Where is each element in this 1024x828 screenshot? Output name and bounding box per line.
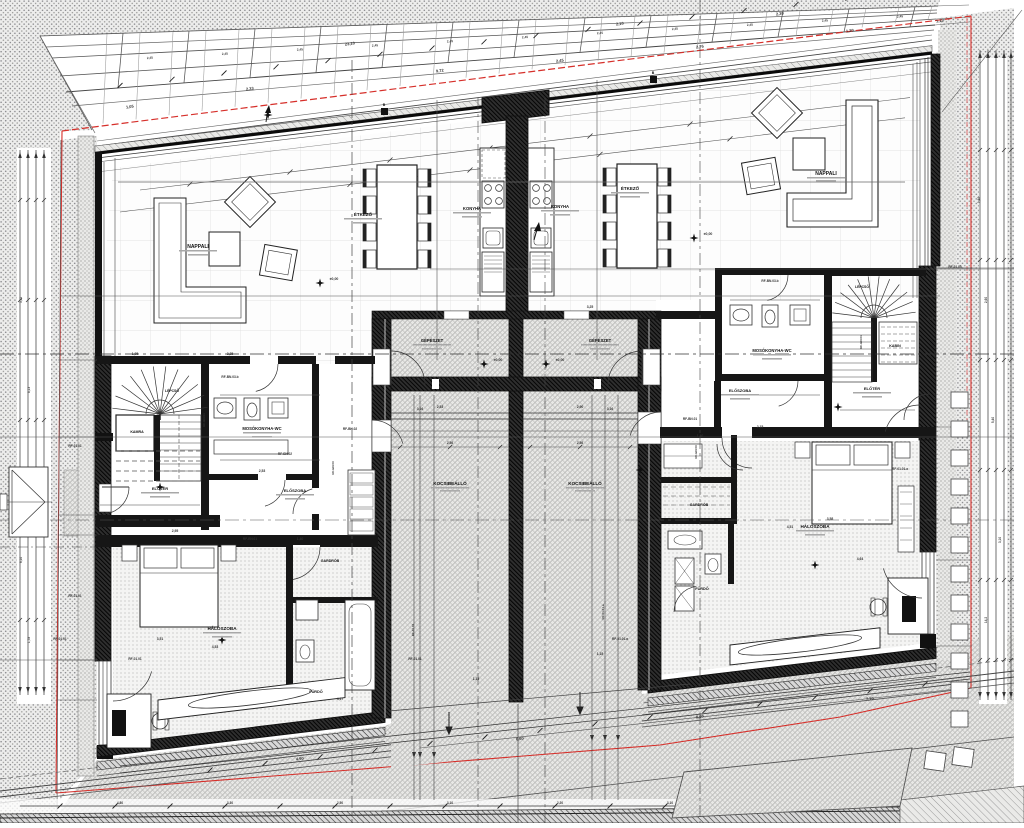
svg-text:3,25: 3,25: [587, 305, 594, 309]
svg-text:2,45: 2,45: [297, 47, 304, 51]
svg-text:1,15: 1,15: [473, 677, 480, 681]
svg-text:7,10: 7,10: [866, 695, 875, 701]
svg-text:3,51: 3,51: [157, 637, 164, 641]
svg-text:3,10: 3,10: [447, 801, 453, 805]
svg-text:4,15: 4,15: [927, 317, 934, 321]
svg-text:2,50: 2,50: [337, 801, 343, 805]
svg-text:6,13: 6,13: [27, 387, 31, 393]
svg-text:2,45: 2,45: [372, 43, 379, 47]
svg-text:2,53: 2,53: [259, 469, 266, 473]
svg-text:2,56: 2,56: [577, 441, 583, 445]
svg-text:RF-BN.02: RF-BN.02: [343, 427, 358, 431]
svg-text:RF-BN.01: RF-BN.01: [202, 413, 206, 427]
svg-text:GARDRÓB: GARDRÓB: [321, 558, 340, 563]
svg-text:ELŐTÉR: ELŐTÉR: [864, 386, 880, 391]
svg-text:HÁLÓSZOBA: HÁLÓSZOBA: [207, 624, 237, 631]
svg-text:2,90: 2,90: [577, 405, 584, 409]
svg-text:4,17: 4,17: [337, 697, 344, 701]
svg-text:ÉTKEZŐ: ÉTKEZŐ: [621, 184, 640, 191]
svg-text:KABIN: KABIN: [889, 344, 901, 348]
svg-text:RF-01.01: RF-01.01: [68, 444, 82, 448]
svg-text:RF-01.05: RF-01.05: [948, 265, 962, 269]
svg-text:2,30: 2,30: [776, 10, 785, 16]
svg-text:HÁLÓSZOBA: HÁLÓSZOBA: [800, 522, 830, 529]
svg-text:1,46: 1,46: [977, 197, 981, 203]
svg-text:3,10: 3,10: [998, 537, 1002, 543]
svg-text:1,95: 1,95: [132, 352, 139, 356]
svg-text:4,80: 4,80: [117, 801, 123, 805]
svg-text:2,45: 2,45: [447, 39, 454, 43]
svg-text:5,40: 5,40: [991, 417, 995, 423]
svg-text:2,45: 2,45: [597, 31, 604, 35]
svg-text:3,30: 3,30: [227, 801, 233, 805]
svg-text:RF-01.01.a: RF-01.01.a: [601, 604, 605, 619]
svg-text:3,16: 3,16: [607, 407, 613, 411]
svg-text:ELŐSZOBA: ELŐSZOBA: [729, 388, 751, 393]
svg-text:KONYHA: KONYHA: [551, 204, 569, 209]
svg-text:RF-BN.01: RF-BN.01: [683, 417, 698, 421]
svg-text:KOCSIBEÁLLÓ: KOCSIBEÁLLÓ: [433, 479, 467, 486]
svg-text:RF-BN.03.b: RF-BN.03.b: [761, 279, 778, 283]
svg-text:LÉPCSŐ: LÉPCSŐ: [855, 284, 869, 289]
svg-text:1,20: 1,20: [846, 27, 855, 33]
svg-text:1,15: 1,15: [597, 652, 604, 656]
svg-text:KAMRA: KAMRA: [130, 430, 144, 434]
svg-text:RF-EN.02: RF-EN.02: [278, 452, 292, 456]
svg-text:LÉPCSŐ: LÉPCSŐ: [165, 388, 179, 393]
svg-text:2,20: 2,20: [557, 801, 563, 805]
svg-text:RF-01.01.a: RF-01.01.a: [612, 637, 628, 641]
svg-text:3,58: 3,58: [827, 517, 834, 521]
svg-text:±0,00: ±0,00: [556, 358, 565, 362]
svg-text:FÜRDŐ: FÜRDŐ: [695, 586, 709, 591]
svg-text:8,60: 8,60: [696, 713, 705, 719]
svg-text:5,11: 5,11: [19, 297, 23, 303]
svg-text:±0,00: ±0,00: [704, 232, 713, 236]
svg-text:KOCSIBEÁLLÓ: KOCSIBEÁLLÓ: [568, 479, 602, 486]
svg-text:4,90: 4,90: [296, 755, 305, 761]
svg-text:±0,00: ±0,00: [494, 358, 503, 362]
svg-text:RF-01.01: RF-01.01: [128, 657, 142, 661]
svg-text:RF-01.01: RF-01.01: [411, 623, 415, 636]
svg-text:4,51: 4,51: [787, 525, 794, 529]
svg-text:RF-01.01.a: RF-01.01.a: [892, 467, 908, 471]
svg-text:9,10: 9,10: [19, 557, 23, 563]
svg-text:1,05: 1,05: [126, 103, 135, 109]
svg-text:ELŐSZOBA: ELŐSZOBA: [284, 488, 306, 493]
svg-text:RF-EN.03: RF-EN.03: [331, 461, 335, 475]
svg-text:MOSÓKONYHA-WC: MOSÓKONYHA-WC: [752, 348, 791, 353]
svg-text:3,25: 3,25: [227, 352, 234, 356]
svg-text:2,60: 2,60: [984, 297, 988, 303]
svg-text:2,76: 2,76: [696, 43, 705, 49]
svg-text:2,45: 2,45: [522, 35, 529, 39]
svg-text:1,40: 1,40: [697, 434, 704, 438]
svg-text:MOSÓKONYHA-WC: MOSÓKONYHA-WC: [242, 426, 281, 431]
svg-text:FÜRDŐ: FÜRDŐ: [309, 689, 323, 694]
svg-text:1,40: 1,40: [297, 537, 304, 541]
svg-text:2,45: 2,45: [897, 14, 904, 18]
svg-text:1,13: 1,13: [936, 17, 945, 23]
svg-text:NAPPALI: NAPPALI: [187, 244, 209, 250]
svg-text:RF-EN.01: RF-EN.01: [243, 537, 257, 541]
svg-text:ÉTKEZŐ: ÉTKEZŐ: [354, 210, 373, 217]
svg-text:2,45: 2,45: [747, 23, 754, 27]
svg-text:6,60: 6,60: [516, 735, 525, 741]
svg-text:GARDRÓB: GARDRÓB: [690, 502, 709, 507]
svg-text:±0,00: ±0,00: [330, 277, 339, 281]
svg-text:2,45: 2,45: [822, 18, 829, 22]
svg-text:4,64: 4,64: [857, 557, 864, 561]
svg-text:2,45: 2,45: [222, 52, 229, 56]
svg-text:2,45: 2,45: [556, 57, 565, 63]
svg-text:GÉPÉSZET: GÉPÉSZET: [421, 338, 444, 343]
svg-text:2,10: 2,10: [616, 20, 625, 26]
svg-text:2,95: 2,95: [172, 529, 179, 533]
svg-text:RF-01.01: RF-01.01: [53, 637, 67, 641]
svg-text:RF-BN.03.b: RF-BN.03.b: [221, 375, 238, 379]
svg-text:ELŐTÉR: ELŐTÉR: [152, 486, 168, 491]
svg-text:RF-EN.03: RF-EN.03: [694, 445, 698, 459]
svg-text:RF-01.01: RF-01.01: [68, 594, 82, 598]
svg-text:2,56: 2,56: [447, 441, 453, 445]
svg-text:2,33: 2,33: [246, 85, 255, 91]
svg-text:2,15: 2,15: [757, 425, 764, 429]
svg-text:KONYHA: KONYHA: [463, 206, 481, 211]
svg-text:RF-01.01: RF-01.01: [408, 657, 422, 661]
svg-text:3,10: 3,10: [667, 801, 673, 805]
svg-text:4,53: 4,53: [212, 645, 219, 649]
svg-text:1,78: 1,78: [27, 637, 31, 643]
svg-text:GÉPÉSZET: GÉPÉSZET: [589, 338, 612, 343]
svg-text:NAPPALI: NAPPALI: [815, 171, 837, 177]
svg-text:14,2: 14,2: [984, 617, 988, 623]
svg-text:9,72: 9,72: [436, 67, 445, 73]
svg-text:2,45: 2,45: [672, 27, 679, 31]
svg-text:2,45: 2,45: [147, 56, 154, 60]
svg-text:2,53: 2,53: [437, 405, 444, 409]
svg-text:RF-BN.01: RF-BN.01: [859, 335, 863, 349]
